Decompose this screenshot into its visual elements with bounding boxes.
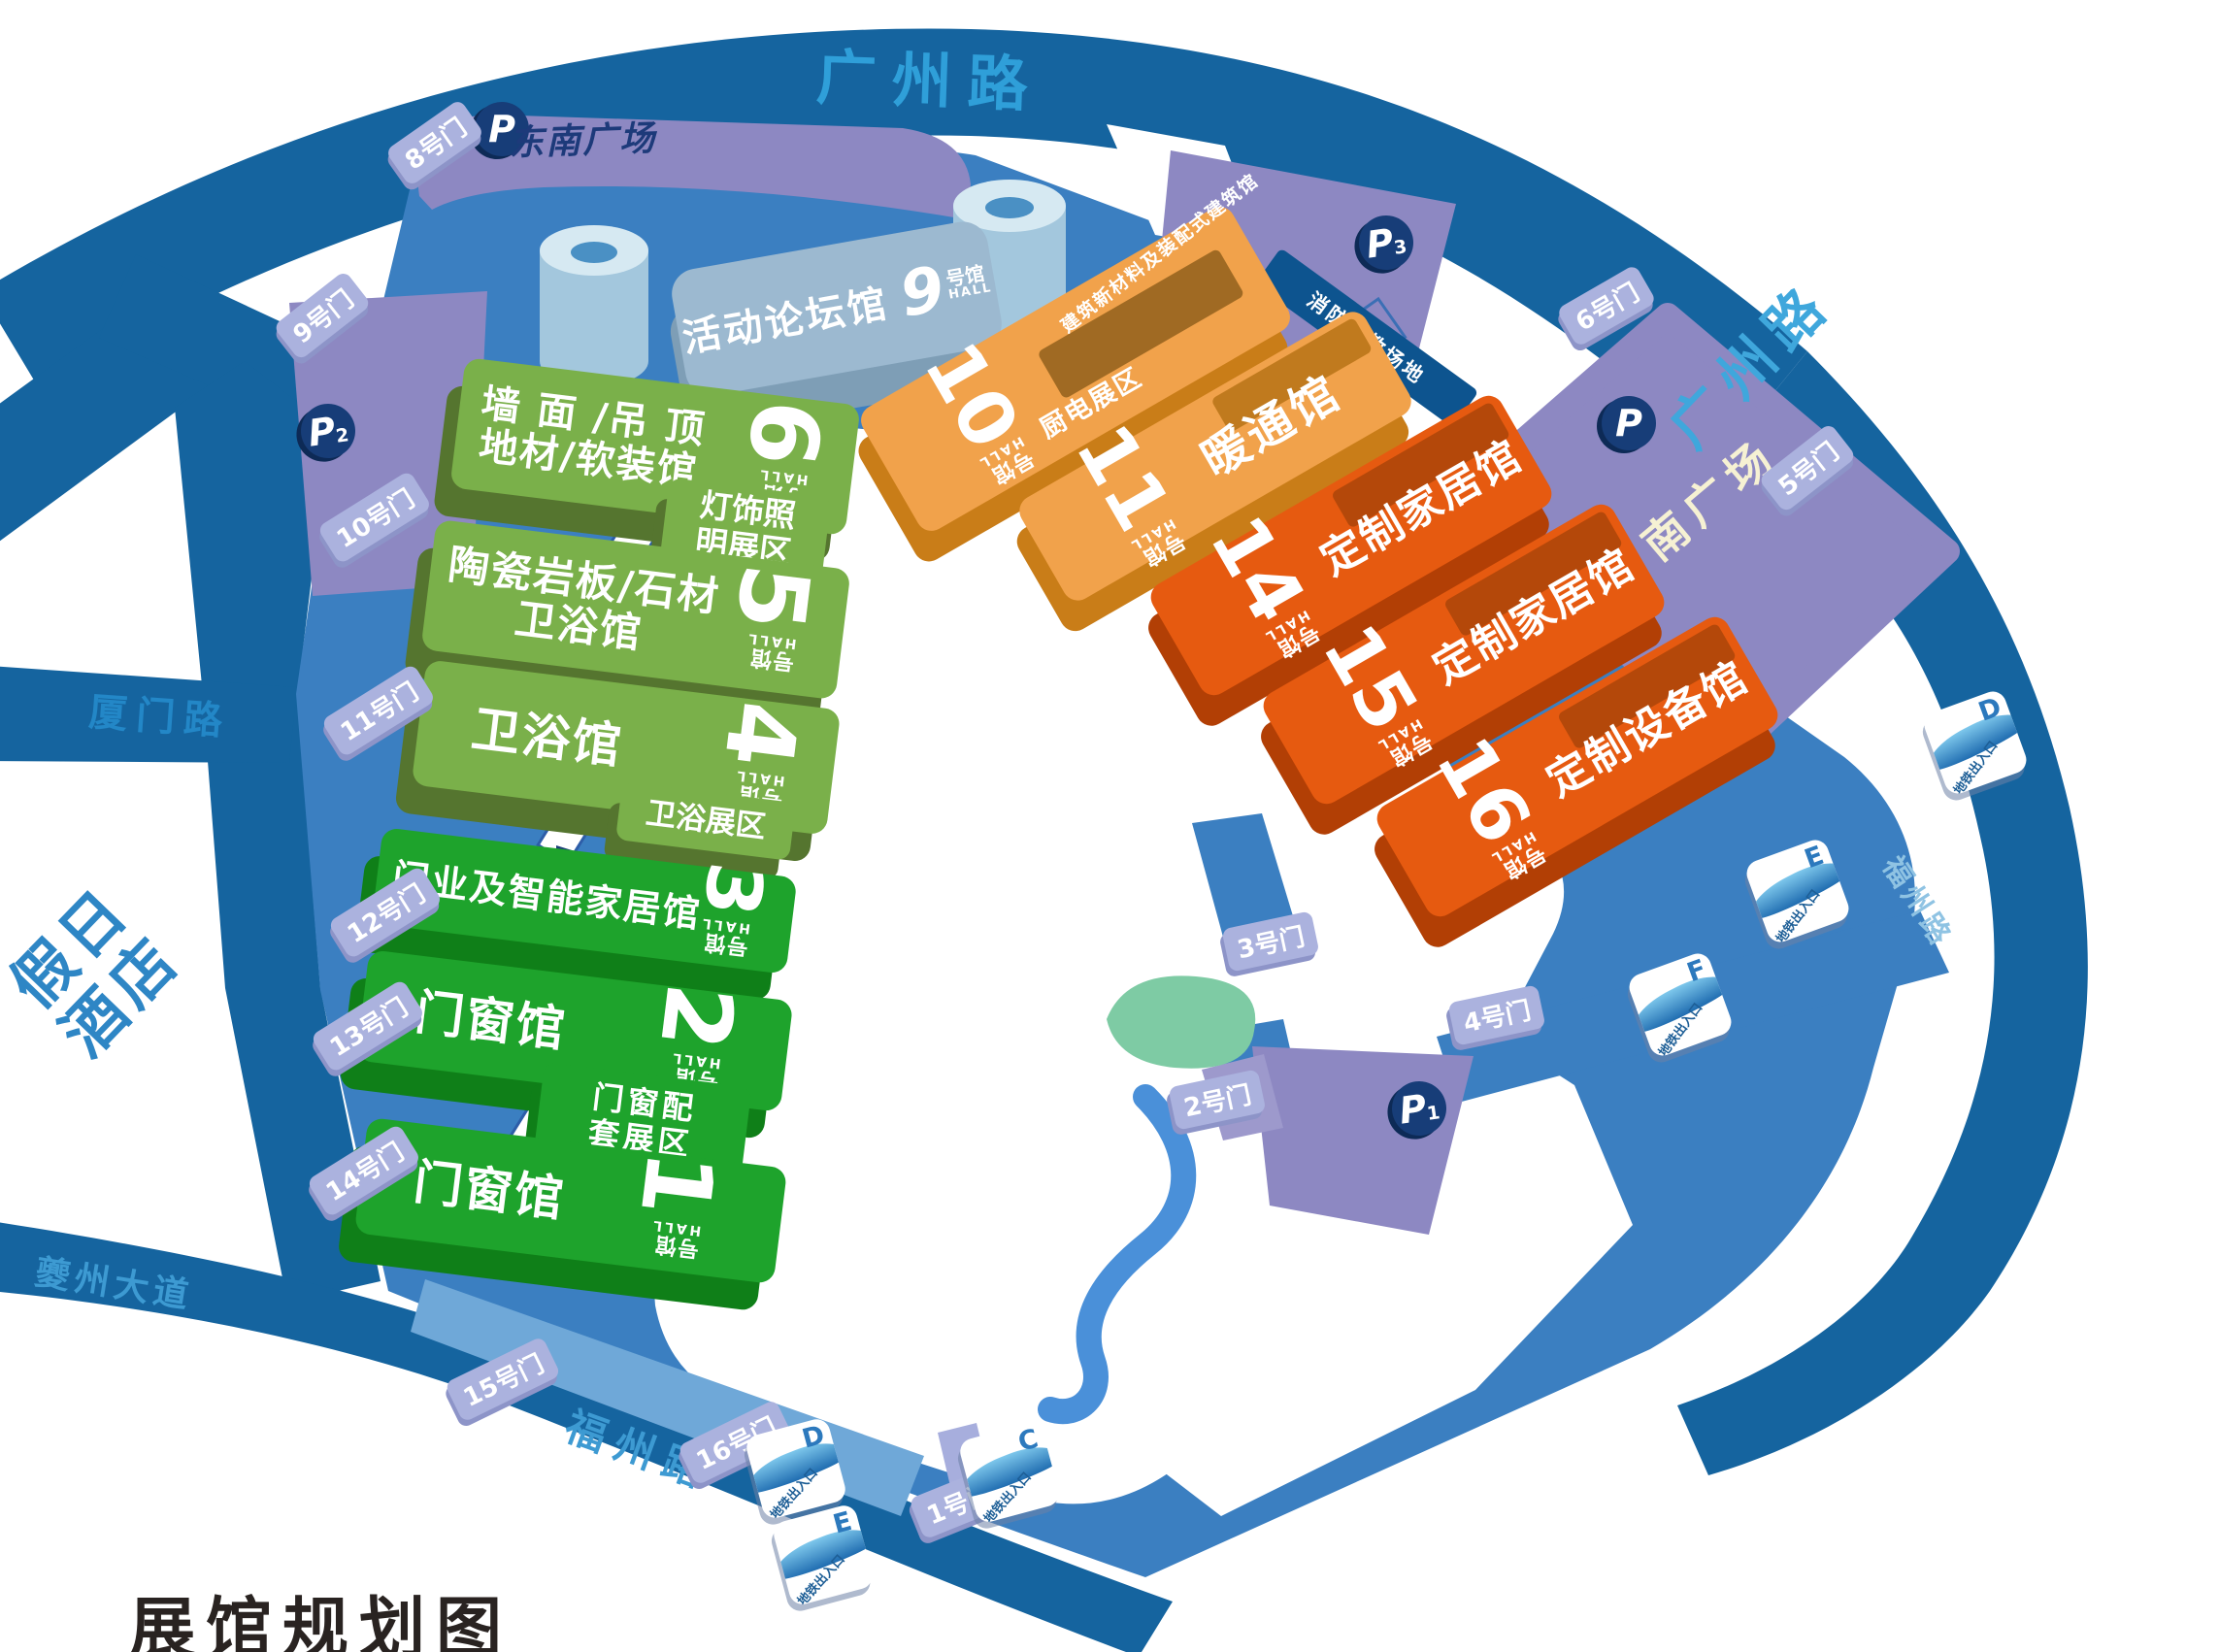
hall-5-name: 陶瓷岩板/石材 卫浴馆 bbox=[441, 541, 723, 665]
parking-letter: P bbox=[306, 409, 339, 454]
hall-9-name: 活动论坛馆 bbox=[678, 272, 893, 363]
parking-number: 1 bbox=[1426, 1102, 1441, 1125]
hall-1-number: 1 号馆 HALL bbox=[629, 1147, 716, 1278]
hall-6-name: 墙 面 /吊 顶 地材/软装馆 bbox=[474, 381, 709, 495]
hall-number: 6 bbox=[744, 396, 823, 469]
hall-number: 9 bbox=[897, 265, 948, 321]
hall-1-name: 门窗馆 bbox=[411, 1154, 568, 1227]
southeast-plaza-label: 东南广场 bbox=[508, 110, 657, 165]
parking-number: 3 bbox=[1393, 236, 1408, 259]
zone-bath-label: 卫浴展区 bbox=[644, 797, 767, 845]
hall-16-number: 16 号馆 HALL bbox=[1431, 730, 1564, 902]
hall-2-name: 门窗馆 bbox=[413, 984, 570, 1057]
parking-letter: P bbox=[1397, 1086, 1430, 1132]
hall-9-number: 9 号馆 HALL bbox=[897, 257, 996, 322]
exhibition-map: 广州路 广州路 厦门路 夔州大道 福州路 福州路 假日 酒店 P 东南广场 P2… bbox=[0, 0, 2219, 1652]
road-label-guangzhou-top: 广州路 bbox=[814, 28, 1044, 123]
hall-11-number: 11 号馆 HALL bbox=[1071, 418, 1204, 590]
hall-name-line: 卫浴馆 bbox=[469, 702, 626, 775]
hall-4-name: 卫浴馆 bbox=[469, 702, 626, 775]
hall-number: 3 bbox=[700, 860, 765, 919]
map-base-shapes bbox=[0, 0, 2219, 1652]
hall-10-number: 10 号馆 HALL bbox=[918, 335, 1051, 507]
cylinder-left bbox=[540, 225, 648, 386]
parking-letter: P bbox=[1615, 402, 1642, 445]
page-title: 展馆规划图 bbox=[129, 1574, 513, 1652]
hall-name-line: 门窗馆 bbox=[413, 984, 570, 1057]
zone-line: 卫浴展区 bbox=[644, 797, 767, 845]
road-label-xiamen: 厦门路 bbox=[87, 680, 234, 746]
hall-5-number: 5 号馆 HALL bbox=[724, 560, 811, 691]
parking-letter: P bbox=[1364, 220, 1397, 266]
hall-number: 5 bbox=[732, 560, 811, 633]
hall-3-number: 3 号馆 HALL bbox=[692, 860, 764, 977]
hall-number: 2 bbox=[656, 979, 736, 1052]
hall-number: 1 bbox=[637, 1147, 716, 1220]
parking-number: 2 bbox=[335, 424, 350, 447]
hall-name-line: 门窗馆 bbox=[411, 1154, 568, 1227]
hall-number: 4 bbox=[720, 698, 800, 771]
parking-icon-south[interactable]: P bbox=[1602, 396, 1656, 450]
